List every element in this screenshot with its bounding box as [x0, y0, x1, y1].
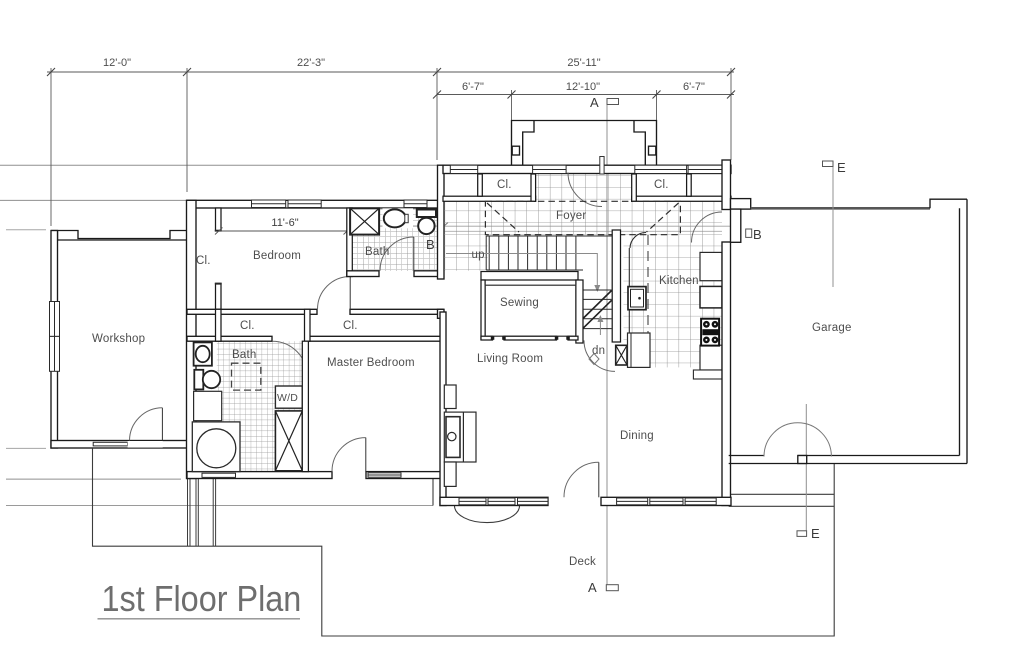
svg-text:6'-7": 6'-7" [462, 81, 484, 93]
svg-text:1st Floor Plan: 1st Floor Plan [102, 579, 302, 619]
svg-text:Bath: Bath [365, 246, 389, 258]
svg-text:A: A [590, 95, 599, 110]
svg-text:up: up [472, 249, 485, 261]
svg-text:W/D: W/D [277, 392, 298, 404]
svg-text:Living Room: Living Room [477, 353, 543, 365]
svg-text:Bath: Bath [232, 349, 256, 361]
svg-text:25'-11": 25'-11" [567, 57, 600, 69]
svg-text:Workshop: Workshop [92, 333, 145, 345]
svg-text:B: B [426, 237, 435, 252]
svg-text:dn: dn [592, 345, 605, 357]
svg-text:12'-0": 12'-0" [103, 57, 131, 69]
svg-text:22'-3": 22'-3" [297, 57, 325, 69]
svg-text:Dining: Dining [620, 430, 654, 442]
svg-text:Garage: Garage [812, 322, 852, 334]
svg-text:Cl.: Cl. [497, 179, 512, 191]
svg-text:6'-7": 6'-7" [683, 81, 705, 93]
svg-text:Cl.: Cl. [240, 320, 255, 332]
svg-text:Cl.: Cl. [196, 255, 211, 267]
svg-text:E: E [811, 526, 820, 541]
svg-text:Deck: Deck [569, 556, 596, 568]
svg-text:A: A [588, 580, 597, 595]
svg-text:Cl.: Cl. [343, 320, 358, 332]
svg-text:Bedroom: Bedroom [253, 250, 301, 262]
svg-text:Cl.: Cl. [654, 179, 669, 191]
svg-text:11'-6": 11'-6" [271, 217, 298, 229]
svg-text:E: E [837, 160, 846, 175]
svg-text:B: B [753, 227, 762, 242]
svg-text:Sewing: Sewing [500, 297, 539, 309]
svg-text:12'-10": 12'-10" [566, 81, 600, 93]
svg-text:Kitchen: Kitchen [659, 275, 699, 287]
svg-text:Master Bedroom: Master Bedroom [327, 357, 415, 369]
svg-text:Foyer: Foyer [556, 210, 586, 222]
